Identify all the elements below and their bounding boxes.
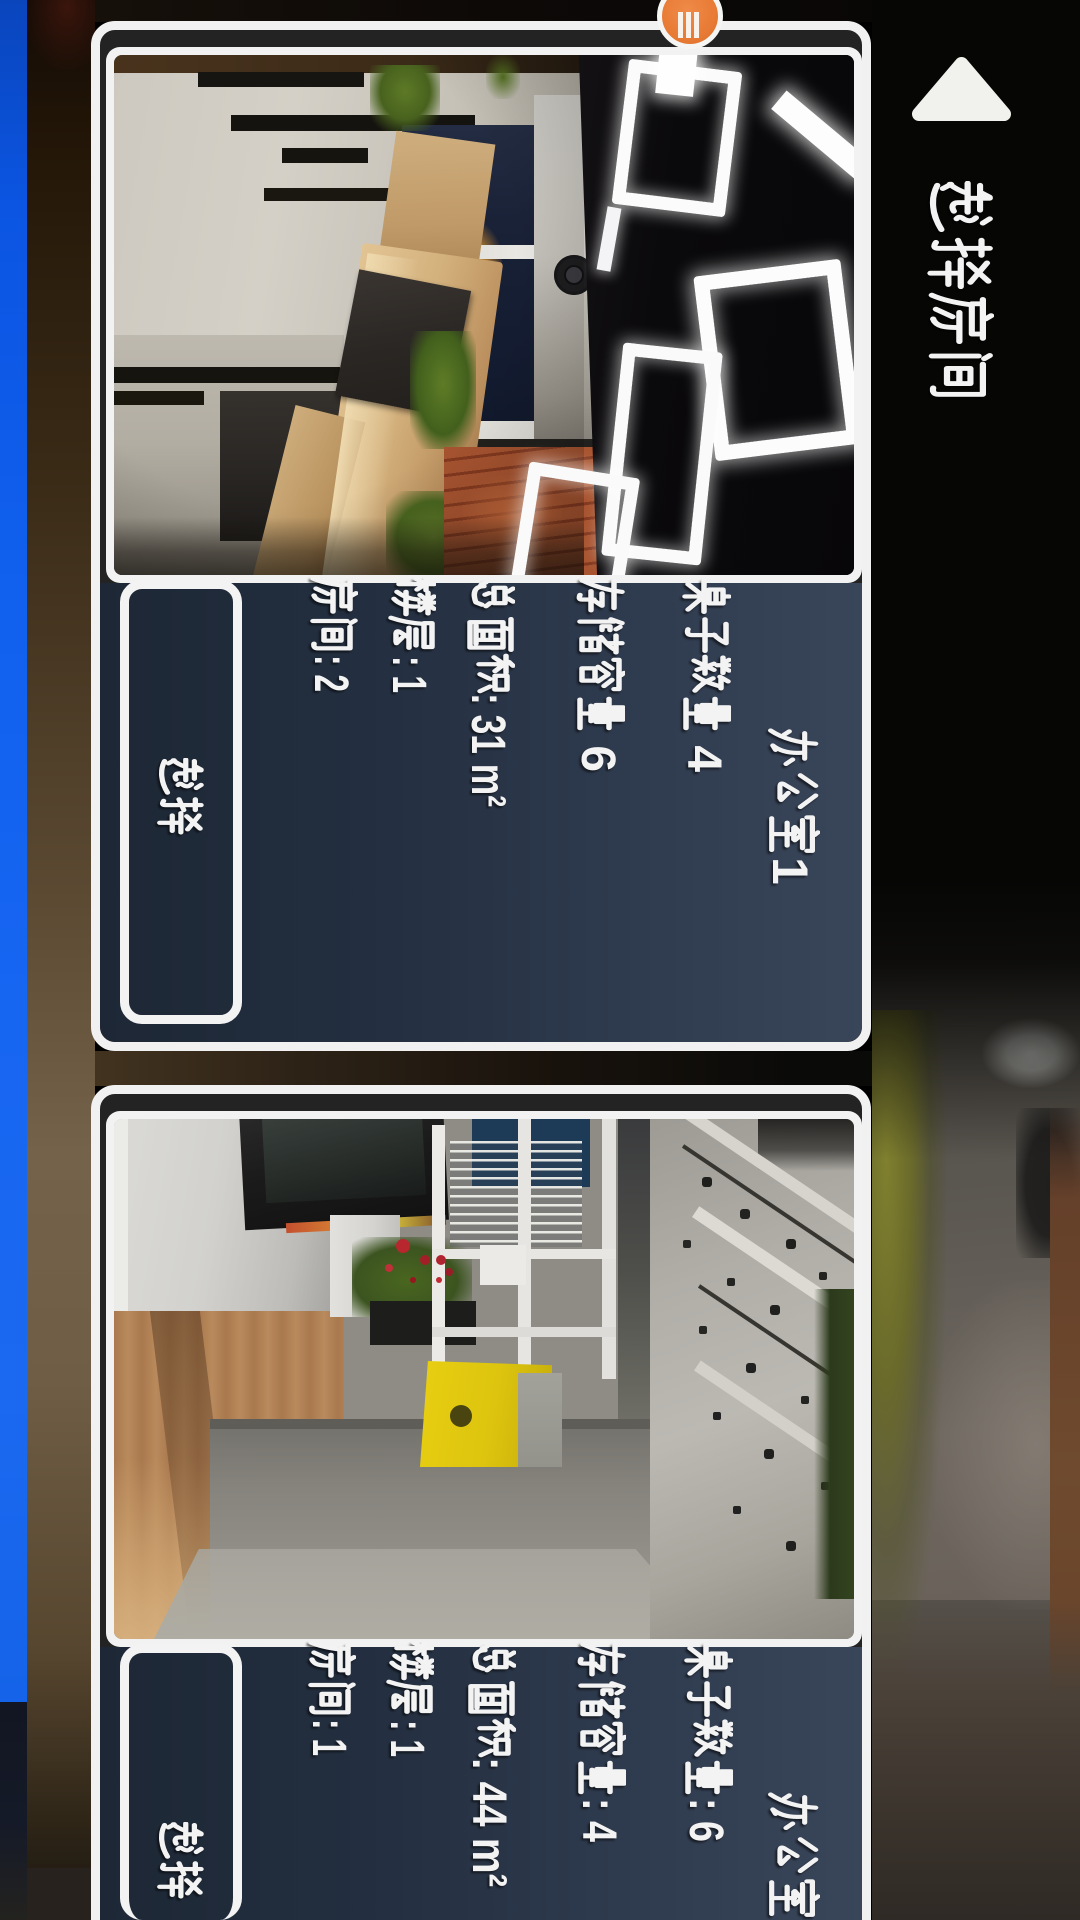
svg-text:: 1: : 1 <box>382 1720 433 1757</box>
svg-text:1: 1 <box>764 857 818 885</box>
svg-text:: 1: : 1 <box>304 1719 355 1756</box>
svg-text:: 4: : 4 <box>574 1798 625 1842</box>
svg-text:4: 4 <box>679 732 730 772</box>
svg-text:: 44 m²: : 44 m² <box>464 1757 515 1887</box>
svg-text:: 1: : 1 <box>384 656 435 693</box>
svg-text:: 31 m²: : 31 m² <box>463 693 514 807</box>
svg-text:: 6: : 6 <box>681 1798 732 1842</box>
svg-text:6: 6 <box>573 732 624 772</box>
svg-text:: 2: : 2 <box>306 655 357 692</box>
